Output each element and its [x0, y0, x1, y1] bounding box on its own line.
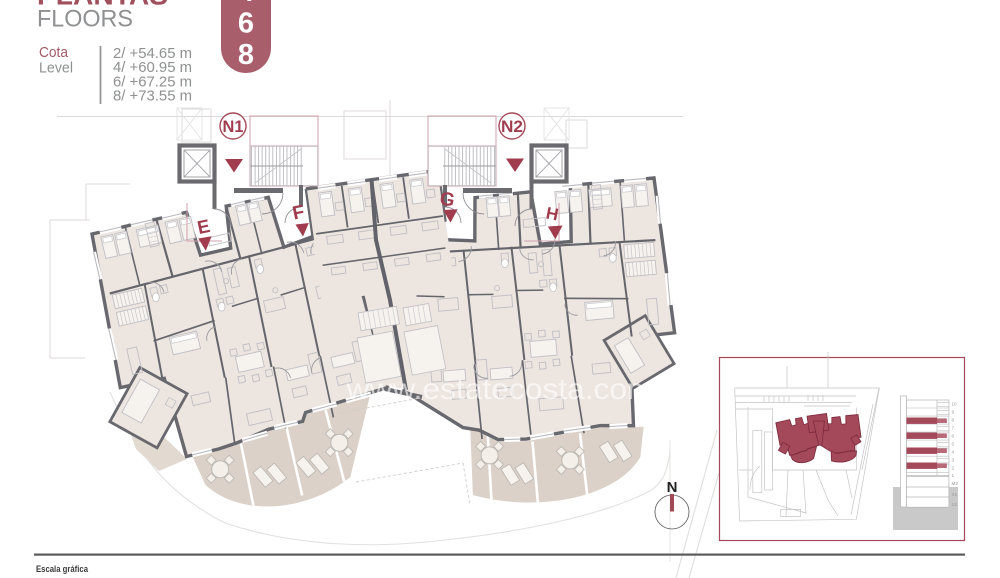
svg-text:S2: S2	[952, 502, 958, 507]
svg-text:10: 10	[952, 402, 958, 407]
svg-text:2: 2	[952, 466, 955, 471]
svg-text:Level: Level	[39, 59, 73, 76]
svg-text:8: 8	[952, 418, 955, 423]
svg-text:6: 6	[952, 434, 955, 439]
svg-text:M2: M2	[952, 481, 959, 486]
svg-text:4: 4	[952, 450, 955, 455]
svg-text:3: 3	[952, 458, 955, 463]
svg-text:9: 9	[952, 410, 955, 415]
svg-text:8/ +73.55 m: 8/ +73.55 m	[113, 88, 192, 105]
svg-text:N2: N2	[501, 118, 523, 136]
svg-text:FLOORS: FLOORS	[37, 6, 133, 33]
svg-text:Escala gráfica: Escala gráfica	[36, 564, 89, 575]
svg-text:1: 1	[952, 473, 955, 478]
svg-text:S1: S1	[952, 492, 958, 497]
svg-text:5: 5	[952, 442, 955, 447]
svg-text:www.estatecosta.com: www.estatecosta.com	[345, 373, 653, 406]
svg-text:7: 7	[952, 426, 955, 431]
svg-text:8: 8	[238, 39, 254, 71]
svg-text:N: N	[667, 479, 678, 496]
svg-text:6: 6	[238, 8, 254, 40]
svg-text:N1: N1	[223, 118, 244, 136]
